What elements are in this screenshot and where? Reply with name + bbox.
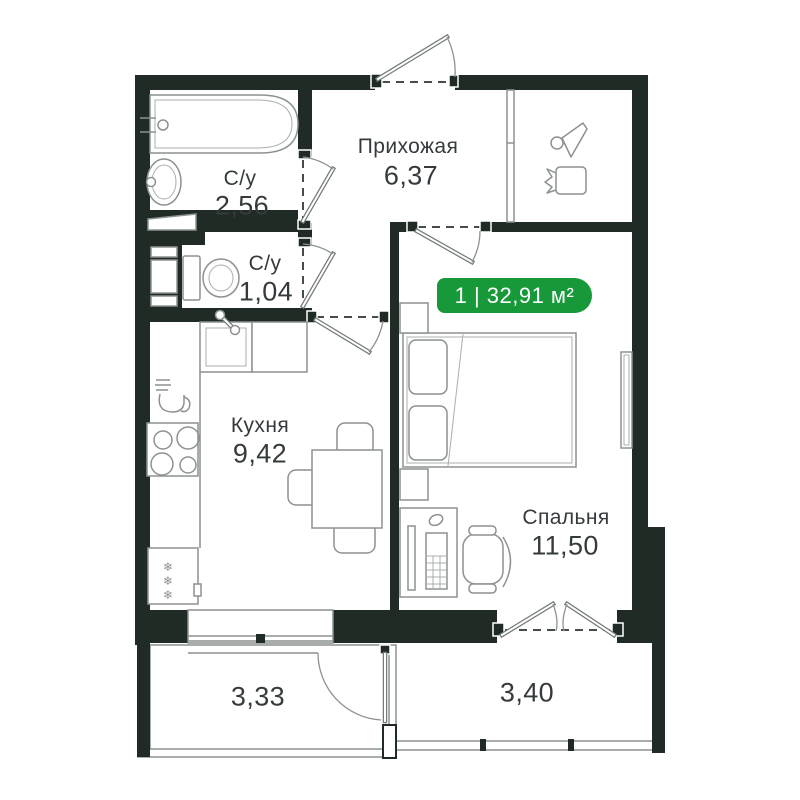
balcony-right (397, 739, 652, 751)
nightstand (400, 303, 428, 333)
bathroom-sink (147, 159, 182, 205)
wc-area: 1,04 (239, 277, 293, 308)
desk (400, 508, 457, 597)
monitor (408, 526, 415, 590)
closet-partition (507, 90, 514, 222)
bathroom-label: С/у (224, 167, 257, 191)
hallway-area: 6,37 (384, 161, 438, 192)
bathroom-area: 2,56 (215, 191, 269, 222)
bedroom-label: Спальня (522, 506, 609, 530)
balcony-french-doors (493, 604, 623, 636)
kitchen-door (307, 311, 389, 352)
bathtub (140, 95, 298, 153)
wc-label: С/у (249, 252, 282, 276)
appliance-icon (155, 380, 190, 412)
snowflake-icon: ❄ (163, 574, 173, 588)
wc-door (298, 238, 333, 306)
balcony-partition-door (318, 645, 390, 721)
snowflake-icon: ❄ (163, 560, 173, 574)
entrance-door (371, 37, 458, 88)
kitchen-label: Кухня (231, 414, 289, 438)
bed (403, 333, 576, 467)
kitchen-counter (252, 322, 307, 372)
toilet (183, 256, 239, 300)
bathroom-door (298, 150, 333, 229)
bedroom-area: 11,50 (531, 531, 599, 562)
balcony-post (383, 725, 396, 758)
kitchen-window (188, 610, 333, 643)
fridge: ❄ ❄ ❄ (148, 548, 201, 604)
office-chair (463, 526, 511, 593)
bedroom-window (621, 352, 632, 448)
pillow (409, 340, 447, 394)
stove (147, 423, 199, 476)
bedroom-door (407, 221, 491, 262)
bathtub-faucet (158, 120, 168, 130)
storage-box-icon (545, 167, 586, 194)
floor-plan-drawing: ❄ ❄ ❄ (0, 0, 800, 800)
pillow (409, 406, 447, 460)
balcony-left-area: 3,33 (231, 682, 285, 713)
balcony-partition (389, 645, 396, 725)
keyboard (426, 533, 447, 589)
balcony-right-area: 3,40 (500, 678, 554, 709)
area-badge-label: 1 | 32,91 м² (455, 283, 575, 309)
kitchen-faucet (216, 311, 225, 320)
dining-table (312, 450, 382, 528)
dining-set (288, 423, 382, 553)
closet (507, 90, 587, 222)
kitchen-area: 9,42 (233, 439, 287, 470)
hanger-icon (551, 123, 587, 157)
area-badge: 1 | 32,91 м² (437, 278, 592, 313)
snowflake-icon: ❄ (163, 588, 173, 602)
floor-plan: ❄ ❄ ❄ Прихожая 6,37 С/у 2,56 (0, 0, 800, 800)
nightstand (400, 469, 428, 500)
hallway-label: Прихожая (358, 135, 459, 159)
